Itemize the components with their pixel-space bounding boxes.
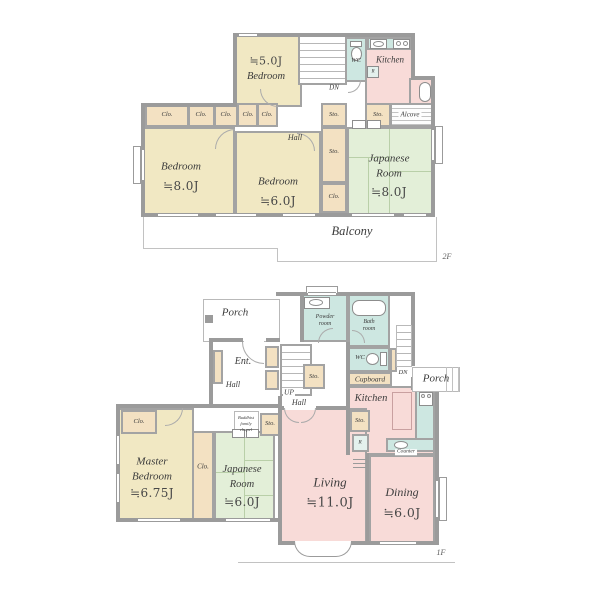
stairs-label: DN xyxy=(397,370,408,377)
wall-segment xyxy=(116,404,282,408)
storage-label: Sto. xyxy=(355,418,365,425)
storage-label: Sto. xyxy=(265,421,275,428)
closet-label: Clo. xyxy=(220,112,231,119)
porch-step-line xyxy=(458,367,459,392)
wall-segment xyxy=(276,292,415,296)
room-name: Bath xyxy=(363,319,374,325)
porch-label: Porch xyxy=(222,308,248,319)
wall-segment xyxy=(233,33,415,37)
counter-label: Counter xyxy=(395,449,417,455)
room-name: Room xyxy=(230,480,255,491)
room-size: ≒8.0J xyxy=(371,186,407,198)
window xyxy=(380,541,416,545)
sliding-door xyxy=(367,120,381,129)
floor-plan: ≒5.0J Bedroom WC Kitchen R DN Clo. Clo. … xyxy=(0,0,600,600)
bathtub-icon xyxy=(352,300,386,316)
window xyxy=(239,33,257,37)
closet-label: Clo. xyxy=(133,419,144,426)
hall-label: Hall xyxy=(288,134,302,142)
window xyxy=(308,292,336,296)
window xyxy=(435,481,439,517)
door-arc xyxy=(348,80,361,93)
storage-label: Sto. xyxy=(329,112,339,119)
window xyxy=(216,213,256,217)
bay-window xyxy=(133,146,141,184)
room-name: Japanese xyxy=(222,465,261,476)
room-name: room xyxy=(363,326,375,332)
porch-pillar xyxy=(205,315,213,323)
closet-label: Clo. xyxy=(328,194,339,201)
room-size: ≒5.0J xyxy=(249,56,282,67)
closet-label: Clo. xyxy=(242,112,253,119)
room-name: Bedroom xyxy=(161,162,201,173)
fixture-label: R xyxy=(358,440,361,446)
burner-icon xyxy=(427,394,431,398)
room-name: WC xyxy=(355,355,365,362)
chapel-label: chapel xyxy=(240,428,252,433)
shoe-cabinet xyxy=(213,350,223,384)
room-name: Bedroom xyxy=(258,177,298,188)
balcony-label: Balcony xyxy=(332,225,373,238)
wall-segment xyxy=(278,396,282,545)
balcony-outline xyxy=(143,248,277,249)
window xyxy=(431,130,435,160)
chapel-label: Buddhist xyxy=(238,416,254,421)
cupboard-label: Cupboard xyxy=(355,375,385,383)
room-name: Kitchen xyxy=(355,394,388,405)
room-name: Japanese xyxy=(369,154,410,165)
stairs-label: UP xyxy=(283,388,295,396)
entrance-label: Ent. xyxy=(235,357,251,367)
closet-box xyxy=(192,431,214,520)
storage-label: Sto. xyxy=(329,149,339,156)
room-size: ≒6.75J xyxy=(130,487,174,499)
stairs-label: DN xyxy=(329,85,339,92)
closet-label: Clo. xyxy=(195,112,206,119)
room-size: ≒6.0J xyxy=(260,195,296,207)
window xyxy=(404,213,426,217)
room-size: ≒11.0J xyxy=(306,497,353,510)
room-name: Room xyxy=(376,169,402,180)
toilet-icon xyxy=(380,352,387,366)
wall-segment xyxy=(435,386,439,545)
room-name: Powder xyxy=(316,314,335,320)
window xyxy=(352,213,394,217)
shoe-cabinet xyxy=(265,346,279,368)
bay-window xyxy=(435,126,443,164)
porch-label: Porch xyxy=(423,374,449,385)
room-size: ≒8.0J xyxy=(163,180,199,192)
exterior-stairs-dn xyxy=(396,325,412,367)
wall-segment xyxy=(209,338,243,342)
fixture-label: R xyxy=(371,70,374,75)
closet-label: Clo. xyxy=(161,112,172,119)
bow-window xyxy=(294,541,352,557)
room-size: ≒6.0J xyxy=(383,507,420,520)
hall-label: Hall xyxy=(292,399,306,407)
wall-segment xyxy=(366,453,369,543)
wall-segment xyxy=(266,338,280,342)
wall-segment xyxy=(209,338,213,408)
wall-segment xyxy=(346,342,350,455)
room-name: Kitchen xyxy=(376,56,404,65)
wall-segment xyxy=(141,103,237,107)
kitchen-island xyxy=(392,392,412,430)
room-name: Master xyxy=(136,457,167,468)
window xyxy=(116,436,120,464)
window xyxy=(283,213,315,217)
closet-label: Clo. xyxy=(261,112,272,119)
vanity-sink-icon xyxy=(309,299,323,306)
burner-icon xyxy=(421,394,425,398)
staircase-2f xyxy=(298,35,347,85)
porch-area xyxy=(203,299,280,342)
terrace-outline xyxy=(238,562,455,563)
bay-window xyxy=(439,477,447,521)
window xyxy=(138,518,180,522)
toilet-icon xyxy=(366,353,379,365)
room-dining xyxy=(369,455,435,543)
balcony-outline xyxy=(143,217,144,249)
room-name: Bedroom xyxy=(247,72,285,83)
balcony-outline xyxy=(277,248,278,262)
closet-label: Clo. xyxy=(197,464,209,471)
alcove-label: Alcove xyxy=(398,112,421,119)
window xyxy=(116,474,120,502)
storage-label: Sto. xyxy=(373,112,383,119)
hall-label: Hall xyxy=(226,381,240,389)
balcony-outline xyxy=(277,261,437,262)
tatami-line xyxy=(368,157,369,213)
burner-icon xyxy=(403,41,408,46)
room-name: Living xyxy=(313,476,346,489)
porch-step-line xyxy=(452,367,453,392)
chapel-label: family xyxy=(240,422,251,427)
kitchen-sink-icon xyxy=(373,41,384,47)
shoe-cabinet xyxy=(265,370,279,390)
window xyxy=(226,518,270,522)
burner-icon xyxy=(396,41,401,46)
room-name: Bedroom xyxy=(132,472,172,483)
sliding-door xyxy=(352,120,366,129)
room-name: Dining xyxy=(385,486,418,498)
room-name: room xyxy=(319,321,331,327)
wall-segment xyxy=(233,33,237,107)
floor-tag-1f: 1F xyxy=(437,549,446,557)
room-name: WC xyxy=(351,58,361,65)
floor-tag-2f: 2F xyxy=(443,253,452,261)
basin-icon xyxy=(419,82,431,102)
window xyxy=(141,150,145,180)
balcony-outline xyxy=(436,217,437,262)
room-size: ≒6.0J xyxy=(224,496,260,508)
window xyxy=(158,213,198,217)
storage-label: Sto. xyxy=(309,374,319,381)
wall-segment xyxy=(411,33,415,80)
tatami-line xyxy=(244,460,273,461)
